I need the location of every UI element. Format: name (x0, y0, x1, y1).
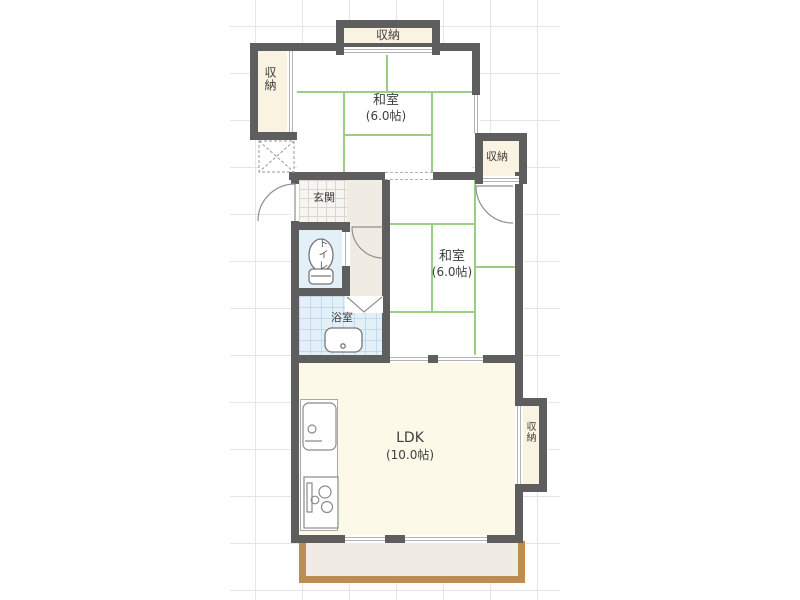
washitsu2-name-label: 和室 (402, 250, 502, 264)
symbols-overlay (0, 0, 800, 600)
ldk-size-label: (10.0帖) (358, 449, 462, 462)
bath-folding-door-icon (347, 297, 382, 312)
closet-left-label: 収納 (264, 66, 276, 92)
toilet-label: トイレ (316, 238, 326, 271)
washitsu1-name-label: 和室 (334, 94, 438, 108)
closet-mid-label: 収納 (475, 151, 519, 163)
entrance-door-icon (258, 184, 295, 221)
kitchen-sink-icon (303, 403, 336, 450)
washitsu2-door-icon (476, 186, 513, 223)
ldk-name-label: LDK (358, 431, 462, 446)
floor-plan: 収納 収納 和室 (6.0帖) 収納 玄関 トイレ 和室 (6.0帖) 浴室 L… (0, 0, 800, 600)
washitsu1-size-label: (6.0帖) (334, 110, 438, 123)
bathtub-icon (325, 328, 362, 352)
washitsu2-size-label: (6.0帖) (402, 266, 502, 279)
bath-label: 浴室 (323, 312, 361, 324)
hall-door-icon (352, 227, 383, 258)
genkan-label: 玄関 (306, 192, 342, 204)
closet-ldk-label: 収納 (524, 421, 534, 443)
closet-top-label: 収納 (358, 29, 418, 42)
kitchen-stove-icon (304, 477, 338, 528)
pipe-shaft-icon (259, 141, 294, 172)
